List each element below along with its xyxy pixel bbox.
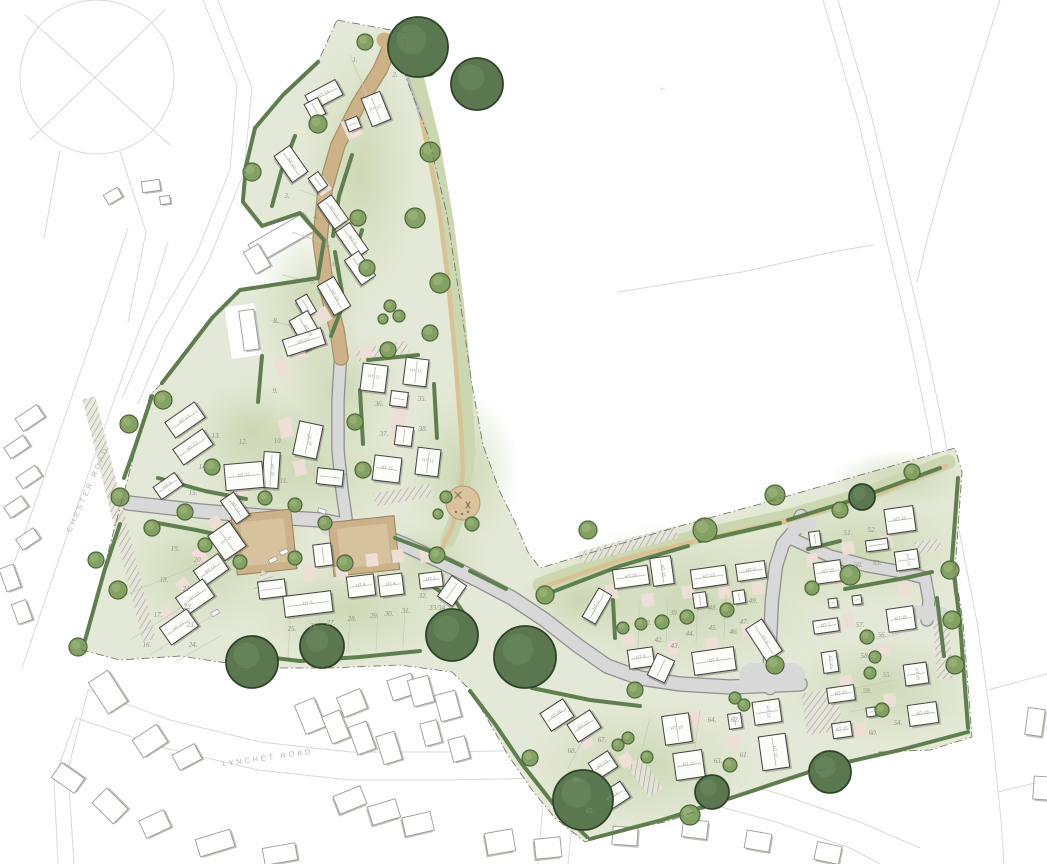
roof-ridge-line bbox=[869, 712, 873, 713]
tree-highlight bbox=[396, 25, 426, 55]
tree-highlight bbox=[357, 464, 365, 472]
plot-number: 45. bbox=[709, 624, 718, 632]
plot-number: 21. bbox=[183, 585, 192, 593]
tree-highlight bbox=[179, 506, 187, 514]
driveway bbox=[898, 583, 912, 598]
plot-number: 42. bbox=[655, 636, 664, 644]
tree-highlight bbox=[379, 315, 384, 320]
plot-number: 11. bbox=[280, 477, 288, 485]
plot-number: 4. bbox=[313, 213, 319, 221]
driveway bbox=[621, 633, 635, 648]
plot-number: 60. bbox=[869, 729, 878, 737]
existing-building bbox=[744, 830, 772, 852]
plot-number: 5. bbox=[325, 241, 331, 249]
tree-highlight bbox=[949, 658, 958, 667]
tree-highlight bbox=[306, 630, 328, 652]
plot-number: 37. bbox=[379, 430, 389, 438]
plot-number: 36. bbox=[374, 400, 384, 408]
tree-highlight bbox=[146, 522, 154, 530]
existing-building bbox=[1033, 776, 1047, 800]
plot-number: 47. bbox=[740, 618, 749, 626]
play-area bbox=[446, 486, 480, 520]
tree-highlight bbox=[424, 327, 432, 335]
plot-number: 2. bbox=[392, 71, 398, 79]
plot-number: 7. bbox=[310, 278, 316, 286]
plot-number: 33/34. bbox=[428, 604, 447, 612]
tree-highlight bbox=[157, 393, 166, 402]
plot-number: 53. bbox=[873, 559, 882, 567]
tree-highlight bbox=[246, 165, 255, 174]
driveway bbox=[841, 613, 855, 628]
plot-number: 43. bbox=[671, 642, 680, 650]
plot-number: 26. bbox=[310, 622, 319, 630]
tree-highlight bbox=[260, 493, 267, 500]
tree-highlight bbox=[539, 588, 548, 597]
site-plan-svg: 1.2.3.4.5.6.7.8.9.10.11.12.13.14.15.16.1… bbox=[0, 0, 1047, 864]
plot-number: 29. bbox=[370, 612, 379, 620]
tree-highlight bbox=[700, 779, 717, 796]
plot-number: 9. bbox=[272, 387, 278, 395]
tree-highlight bbox=[944, 563, 953, 572]
tree-highlight bbox=[768, 488, 778, 498]
tree-highlight bbox=[349, 416, 357, 424]
plot-number: 52. bbox=[868, 526, 877, 534]
plot-number: 20. bbox=[194, 556, 203, 564]
tree-highlight bbox=[815, 756, 836, 777]
plot-number: 64. bbox=[708, 716, 717, 724]
plot-number: 63. bbox=[714, 757, 723, 765]
plot-number: 48. bbox=[709, 604, 718, 612]
driveway bbox=[303, 565, 317, 581]
play-dot-icon bbox=[455, 511, 457, 513]
tree-highlight bbox=[386, 302, 392, 308]
driveway bbox=[751, 581, 765, 596]
driveway bbox=[359, 346, 373, 359]
tree-highlight bbox=[643, 753, 649, 759]
driveway bbox=[391, 549, 404, 563]
tree-highlight bbox=[946, 613, 955, 622]
roof-ridge-line bbox=[855, 600, 859, 601]
tree-highlight bbox=[458, 65, 484, 91]
plot-number: 31. bbox=[401, 607, 411, 615]
tree-highlight bbox=[906, 466, 914, 474]
tree-highlight bbox=[503, 634, 534, 665]
plot-number: 56. bbox=[878, 631, 887, 639]
plot-number: 22. bbox=[184, 603, 193, 611]
tree-highlight bbox=[382, 344, 390, 352]
plot-number: 10. bbox=[274, 437, 283, 445]
tree-highlight bbox=[467, 519, 474, 526]
plot-number: 35. bbox=[417, 395, 427, 403]
plot-number: 3. bbox=[283, 192, 290, 200]
plot-number: 59. bbox=[863, 687, 872, 695]
roof-ridge-line bbox=[831, 603, 835, 604]
plot-number: 15. bbox=[189, 489, 198, 497]
tree-highlight bbox=[624, 734, 630, 740]
tree-highlight bbox=[866, 669, 872, 675]
plot-number: 14. bbox=[199, 463, 208, 471]
tree-highlight bbox=[320, 518, 327, 525]
plot-number: 6. bbox=[332, 260, 338, 268]
tree-highlight bbox=[123, 417, 132, 426]
plot-number: 28. bbox=[348, 615, 357, 623]
tree-highlight bbox=[112, 583, 121, 592]
driveway bbox=[365, 553, 378, 567]
tree-highlight bbox=[433, 616, 459, 642]
driveway bbox=[727, 735, 741, 750]
plot-number: 24. bbox=[189, 641, 198, 649]
tree-highlight bbox=[90, 554, 98, 562]
tree-highlight bbox=[740, 701, 746, 707]
existing-building bbox=[159, 195, 170, 204]
plot-number: 44. bbox=[686, 630, 695, 638]
plot-number: 13. bbox=[212, 432, 221, 440]
plot-number: 46. bbox=[730, 628, 739, 636]
tree-highlight bbox=[206, 461, 214, 469]
plot-number: 17. bbox=[154, 611, 163, 619]
plot-number: 18. bbox=[160, 576, 169, 584]
tree-highlight bbox=[722, 605, 729, 612]
tree-highlight bbox=[339, 557, 347, 565]
plot-number: 54. bbox=[894, 719, 903, 727]
tree-highlight bbox=[614, 741, 620, 747]
tree-highlight bbox=[769, 658, 778, 667]
plot-number: 50. bbox=[854, 561, 863, 569]
plot-number: 25. bbox=[288, 625, 297, 633]
plot-number: 8. bbox=[273, 317, 279, 325]
plot-number: 57. bbox=[856, 621, 865, 629]
tree-highlight bbox=[423, 145, 433, 155]
plot-number: 23. bbox=[187, 621, 196, 629]
tree-highlight bbox=[290, 553, 297, 560]
tree-highlight bbox=[834, 504, 842, 512]
tree-highlight bbox=[731, 694, 737, 700]
plot-number: 65. bbox=[586, 807, 595, 815]
plot-number: 40. bbox=[643, 619, 652, 627]
tree-highlight bbox=[395, 312, 401, 318]
plot-number: 62. bbox=[731, 716, 740, 724]
street bbox=[925, 578, 929, 620]
tree-highlight bbox=[431, 549, 439, 557]
site-plan: 1.2.3.4.5.6.7.8.9.10.11.12.13.14.15.16.1… bbox=[0, 0, 1047, 864]
tree-highlight bbox=[877, 705, 884, 712]
plot-number: 38. bbox=[418, 425, 428, 433]
tree-highlight bbox=[853, 487, 866, 500]
plot-number: 66. bbox=[573, 776, 582, 784]
house-type-label: HT 15 bbox=[270, 464, 276, 477]
tree-highlight bbox=[524, 752, 532, 760]
driveway bbox=[841, 541, 855, 556]
plot-number: 49. bbox=[749, 597, 758, 605]
tree-highlight bbox=[725, 760, 732, 767]
plot-number: 16. bbox=[143, 641, 152, 649]
tree-highlight bbox=[696, 521, 708, 533]
playground bbox=[446, 486, 480, 520]
plot-number: 67. bbox=[598, 736, 607, 744]
existing-building bbox=[1025, 707, 1046, 736]
plot-number: 32. bbox=[418, 592, 428, 600]
tree-highlight bbox=[629, 684, 637, 692]
tree-highlight bbox=[683, 808, 693, 818]
plot-number: 41. bbox=[616, 626, 625, 634]
tree-highlight bbox=[72, 640, 81, 649]
play-dot-icon bbox=[467, 511, 469, 513]
tree-highlight bbox=[657, 617, 664, 624]
driveway bbox=[641, 593, 655, 608]
tree-highlight bbox=[871, 653, 877, 659]
tree-highlight bbox=[408, 211, 418, 221]
tree-highlight bbox=[312, 117, 321, 126]
plot-number: 12. bbox=[239, 438, 248, 446]
plot-number: 27. bbox=[327, 619, 336, 627]
plot-number: 39. bbox=[669, 609, 679, 617]
plot-number: 58. bbox=[861, 652, 870, 660]
plot-number: 30. bbox=[384, 610, 394, 618]
plot-number: 68. bbox=[568, 747, 577, 755]
plot-number: 1. bbox=[352, 56, 358, 64]
tree-highlight bbox=[433, 276, 443, 286]
tree-highlight bbox=[682, 612, 689, 619]
plot-number: 19. bbox=[171, 545, 180, 553]
driveway bbox=[853, 723, 867, 738]
plot-number: 51. bbox=[844, 529, 853, 537]
tree-highlight bbox=[235, 557, 242, 564]
existing-building bbox=[484, 829, 515, 856]
tree-highlight bbox=[290, 500, 297, 507]
plot-number: 61. bbox=[740, 751, 749, 759]
tree-highlight bbox=[843, 568, 853, 578]
tree-highlight bbox=[352, 212, 360, 220]
plot-number: 55. bbox=[883, 671, 892, 679]
tree-highlight bbox=[862, 632, 869, 639]
shared-surface-square bbox=[240, 518, 288, 566]
tree-highlight bbox=[434, 510, 439, 515]
tree-highlight bbox=[114, 490, 123, 499]
tree-highlight bbox=[359, 36, 367, 44]
tree-highlight bbox=[442, 493, 448, 499]
tree-highlight bbox=[582, 523, 591, 532]
tree-highlight bbox=[200, 540, 207, 547]
existing-building bbox=[534, 837, 562, 860]
existing-building bbox=[141, 179, 160, 192]
tree-highlight bbox=[807, 583, 814, 590]
play-dot-icon bbox=[461, 513, 463, 515]
